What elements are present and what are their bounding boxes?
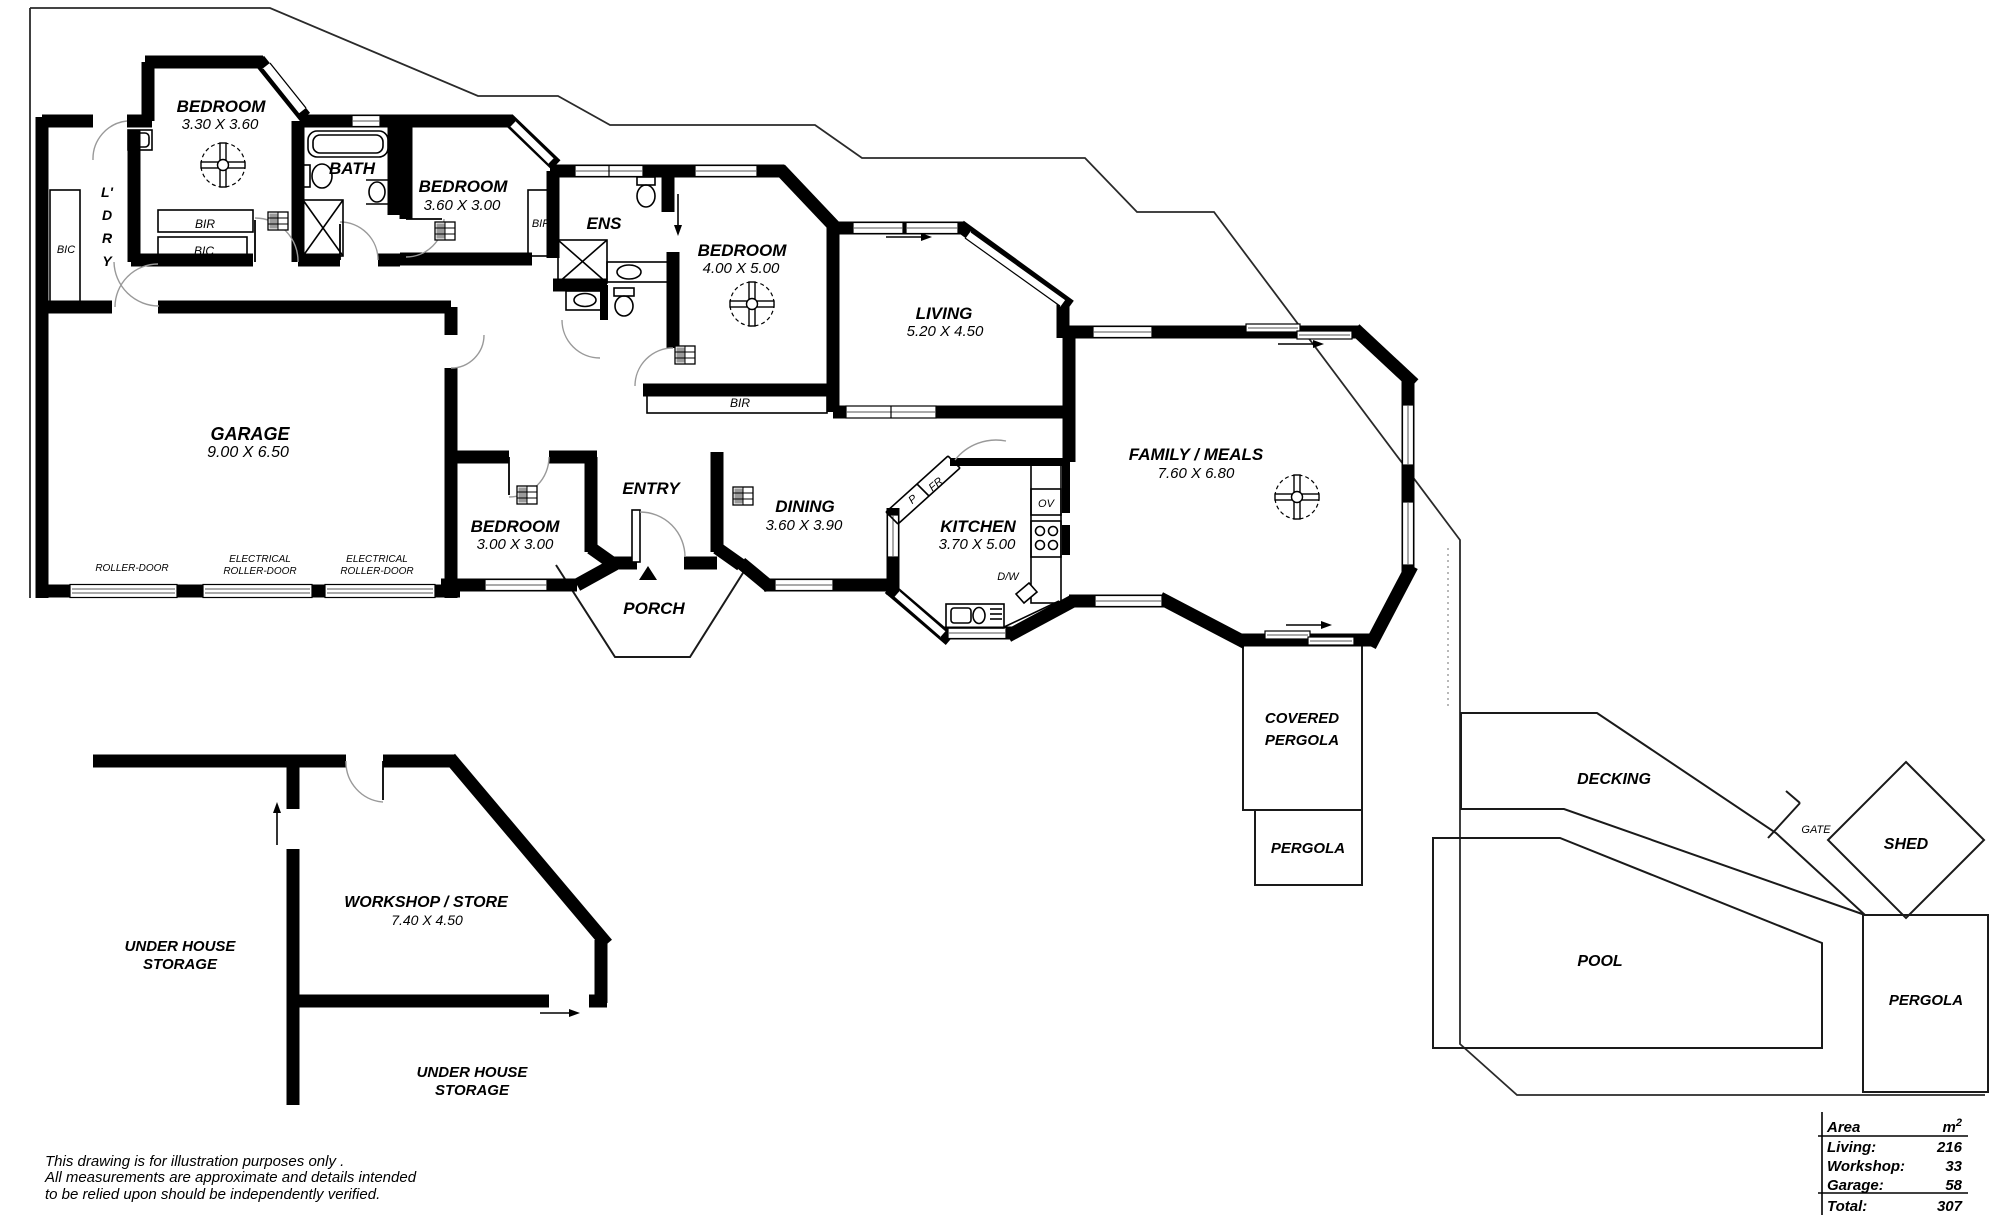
kitchen-sink <box>946 604 1004 628</box>
ceiling-fan <box>201 143 245 187</box>
label-bedroom1-dims: 3.30 X 3.60 <box>182 116 259 133</box>
label-bedroom2-name: BEDROOM <box>419 177 509 196</box>
pool-outline <box>1433 838 1822 1048</box>
window-diagonal <box>965 232 1066 306</box>
window <box>352 116 380 127</box>
label-pergola-house: PERGOLA <box>1271 840 1345 857</box>
label-bedroom1-name: BEDROOM <box>177 97 267 116</box>
window <box>853 223 903 234</box>
roller-door-panel <box>203 585 312 598</box>
label-laundry-l1: L' <box>101 184 114 200</box>
label-bedroom3-dims: 4.00 X 5.00 <box>703 260 780 277</box>
shower-ens <box>558 240 607 283</box>
disclaimer: This drawing is for illustration purpose… <box>44 1153 417 1203</box>
wardrobe-icon <box>675 346 695 364</box>
toilet <box>301 164 332 188</box>
label-elec-roller2-l2: ROLLER-DOOR <box>340 566 413 577</box>
label-fridge: FR <box>927 475 946 494</box>
workshop-walls <box>93 758 607 1105</box>
site-labels: COVERED PERGOLA PERGOLA DECKING GATE SHE… <box>125 710 1964 1099</box>
label-storage1-l2: STORAGE <box>143 956 218 973</box>
label-roller-door: ROLLER-DOOR <box>95 563 168 574</box>
cased-opening <box>846 406 936 418</box>
ceiling-fan <box>730 282 774 326</box>
label-laundry-l2: D <box>102 207 112 223</box>
label-laundry-l3: R <box>102 230 113 246</box>
wardrobe-icon <box>435 222 455 240</box>
ceiling-fan <box>1275 475 1319 519</box>
label-living-name: LIVING <box>916 304 973 323</box>
label-laundry-l4: Y <box>102 253 113 269</box>
unit-sup: 2 <box>1955 1117 1962 1129</box>
disclaimer-line2: All measurements are approximate and det… <box>44 1169 417 1186</box>
entry-door <box>632 510 685 580</box>
toilet-ens <box>637 177 655 207</box>
table-header-unit: m2 <box>1943 1117 1962 1136</box>
table-row-garage-label: Garage: <box>1827 1177 1884 1194</box>
covered-pergola-outline <box>1243 645 1362 810</box>
label-elec-roller1-l2: ROLLER-DOOR <box>223 566 296 577</box>
label-bedroom4-dims: 3.00 X 3.00 <box>477 536 554 553</box>
label-bedroom4-name: BEDROOM <box>471 517 561 536</box>
disclaimer-line1: This drawing is for illustration purpose… <box>45 1153 344 1170</box>
label-bedroom2-dims: 3.60 X 3.00 <box>424 197 501 214</box>
window-diagonal <box>263 63 306 114</box>
label-bic-left: BIC <box>57 244 75 256</box>
table-total-value: 307 <box>1937 1198 1963 1215</box>
label-gate: GATE <box>1801 824 1831 836</box>
label-dining-name: DINING <box>775 497 835 516</box>
basin <box>366 180 390 204</box>
label-covered-pergola-l2: PERGOLA <box>1265 732 1339 749</box>
window <box>1093 327 1152 338</box>
bathtub <box>308 131 388 157</box>
label-workshop-dims: 7.40 X 4.50 <box>391 912 463 928</box>
roller-door-panel <box>70 585 177 598</box>
label-garage-dims: 9.00 X 6.50 <box>207 444 289 461</box>
shower <box>303 200 343 256</box>
label-elec-roller1-l1: ELECTRICAL <box>229 554 291 565</box>
window <box>906 223 958 234</box>
roller-door-panel <box>325 585 435 598</box>
floor-plan-drawing: BEDROOM 3.30 X 3.60 BATH L' D R Y BIC BI… <box>0 0 2000 1219</box>
table-row-garage-value: 58 <box>1945 1177 1962 1194</box>
label-bic1: BIC <box>194 244 214 258</box>
label-garage-name: GARAGE <box>210 424 290 444</box>
label-bir3: BIR <box>730 396 750 410</box>
label-pool: POOL <box>1577 953 1622 970</box>
unit-m: m <box>1943 1119 1956 1136</box>
label-family-name: FAMILY / MEALS <box>1129 445 1264 464</box>
dishwasher <box>1016 583 1037 603</box>
window <box>1403 502 1414 565</box>
area-table: Area m2 Living: 216 Workshop: 33 Garage:… <box>1818 1112 1968 1215</box>
label-oven: OV <box>1038 498 1056 510</box>
label-bir1: BIR <box>195 217 215 231</box>
label-kitchen-name: KITCHEN <box>940 517 1016 536</box>
floor-plan-page: BEDROOM 3.30 X 3.60 BATH L' D R Y BIC BI… <box>0 0 2000 1219</box>
label-family-dims: 7.60 X 6.80 <box>1158 465 1235 482</box>
wardrobe-icon <box>268 212 288 230</box>
window <box>1095 596 1162 607</box>
vanity-ens <box>607 262 673 282</box>
wardrobe-icon <box>733 487 753 505</box>
window <box>888 515 899 557</box>
label-bedroom3-name: BEDROOM <box>698 241 788 260</box>
label-bath: BATH <box>329 159 376 178</box>
label-bir2: BIR <box>532 218 550 230</box>
label-covered-pergola-l1: COVERED <box>1265 710 1339 727</box>
label-entry: ENTRY <box>622 479 681 498</box>
window <box>775 580 833 591</box>
label-porch: PORCH <box>623 599 685 618</box>
label-pantry: P <box>906 492 920 506</box>
window-diagonal <box>510 121 554 164</box>
basin-powder <box>566 291 604 310</box>
table-row-living-value: 216 <box>1936 1139 1963 1156</box>
wardrobe-icon <box>517 486 537 504</box>
window <box>1403 405 1414 465</box>
window <box>575 166 643 177</box>
window-diagonal <box>894 591 946 637</box>
label-storage2-l1: UNDER HOUSE <box>417 1064 529 1081</box>
label-decking: DECKING <box>1577 771 1651 788</box>
decking-outline <box>1461 713 1865 915</box>
window <box>695 166 757 177</box>
label-dining-dims: 3.60 X 3.90 <box>766 517 843 534</box>
label-ens: ENS <box>587 214 623 233</box>
label-elec-roller2-l1: ELECTRICAL <box>346 554 408 565</box>
label-workshop-name: WORKSHOP / STORE <box>344 894 509 911</box>
window <box>485 580 547 591</box>
label-living-dims: 5.20 X 4.50 <box>907 323 984 340</box>
garage-doors <box>70 585 435 598</box>
window <box>948 628 1006 639</box>
label-storage2-l2: STORAGE <box>435 1082 510 1099</box>
label-shed: SHED <box>1884 836 1929 853</box>
label-dishwasher: D/W <box>997 571 1020 583</box>
label-storage1-l1: UNDER HOUSE <box>125 938 237 955</box>
table-row-workshop-label: Workshop: <box>1827 1158 1905 1175</box>
table-row-workshop-value: 33 <box>1945 1158 1962 1175</box>
table-header-area: Area <box>1826 1119 1860 1136</box>
disclaimer-line3: to be relied upon should be independentl… <box>45 1186 380 1203</box>
label-pergola-pool: PERGOLA <box>1889 992 1963 1009</box>
table-total-label: Total: <box>1827 1198 1867 1215</box>
toilet-powder <box>614 288 634 316</box>
label-kitchen-dims: 3.70 X 5.00 <box>939 536 1016 553</box>
label-laundry: L' D R Y <box>101 184 114 269</box>
table-row-living-label: Living: <box>1827 1139 1876 1156</box>
